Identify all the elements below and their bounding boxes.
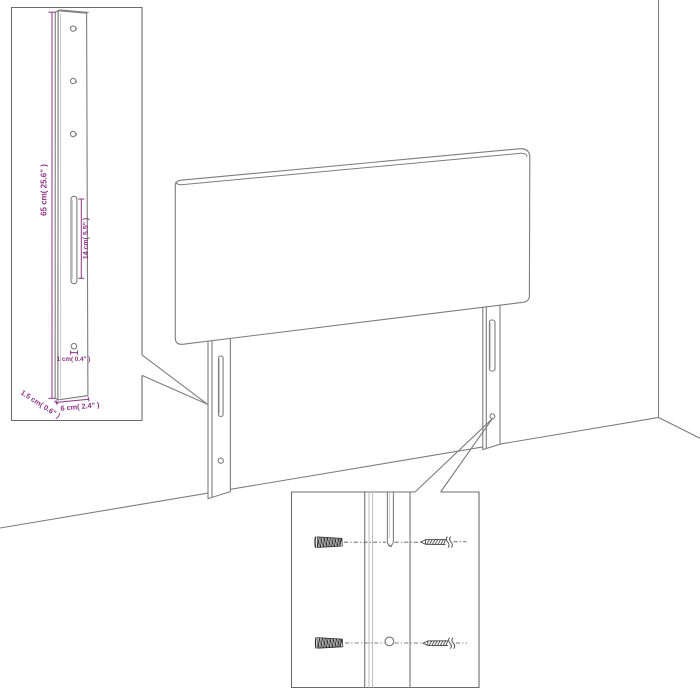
- svg-text:65 cm( 25.6" ): 65 cm( 25.6" ): [40, 164, 49, 216]
- svg-text:1 cm( 0.4" ): 1 cm( 0.4" ): [57, 356, 91, 363]
- svg-text:14 cm( 5.5" ): 14 cm( 5.5" ): [83, 218, 90, 259]
